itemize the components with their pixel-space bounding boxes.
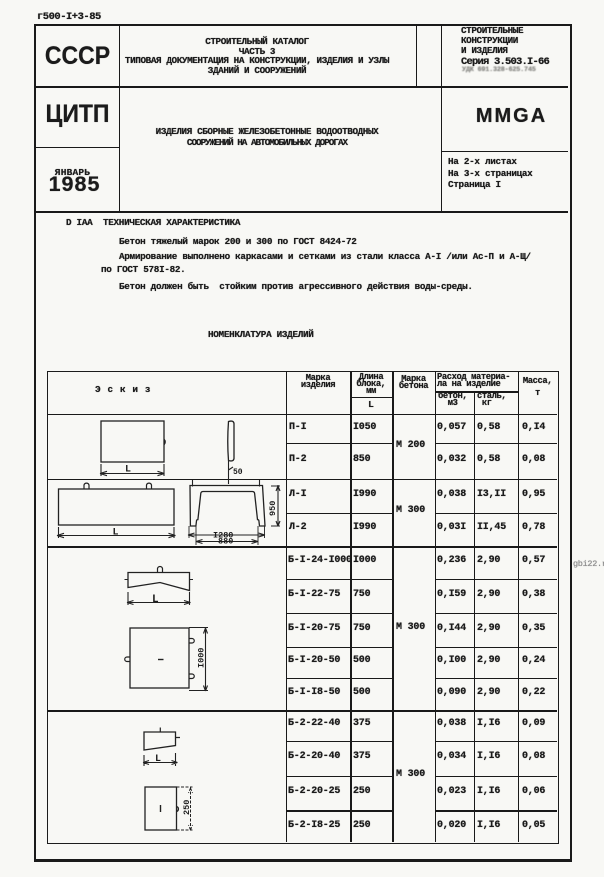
svg-text:880: 880 — [218, 537, 233, 547]
svg-text:250: 250 — [182, 800, 192, 815]
svg-text:950: 950 — [268, 501, 278, 516]
svg-text:I000: I000 — [197, 648, 207, 668]
svg-text:L: L — [152, 594, 159, 606]
svg-text:L: L — [113, 528, 119, 539]
svg-text:L: L — [125, 465, 131, 476]
svg-text:50: 50 — [233, 468, 243, 477]
svg-text:L: L — [155, 754, 161, 765]
